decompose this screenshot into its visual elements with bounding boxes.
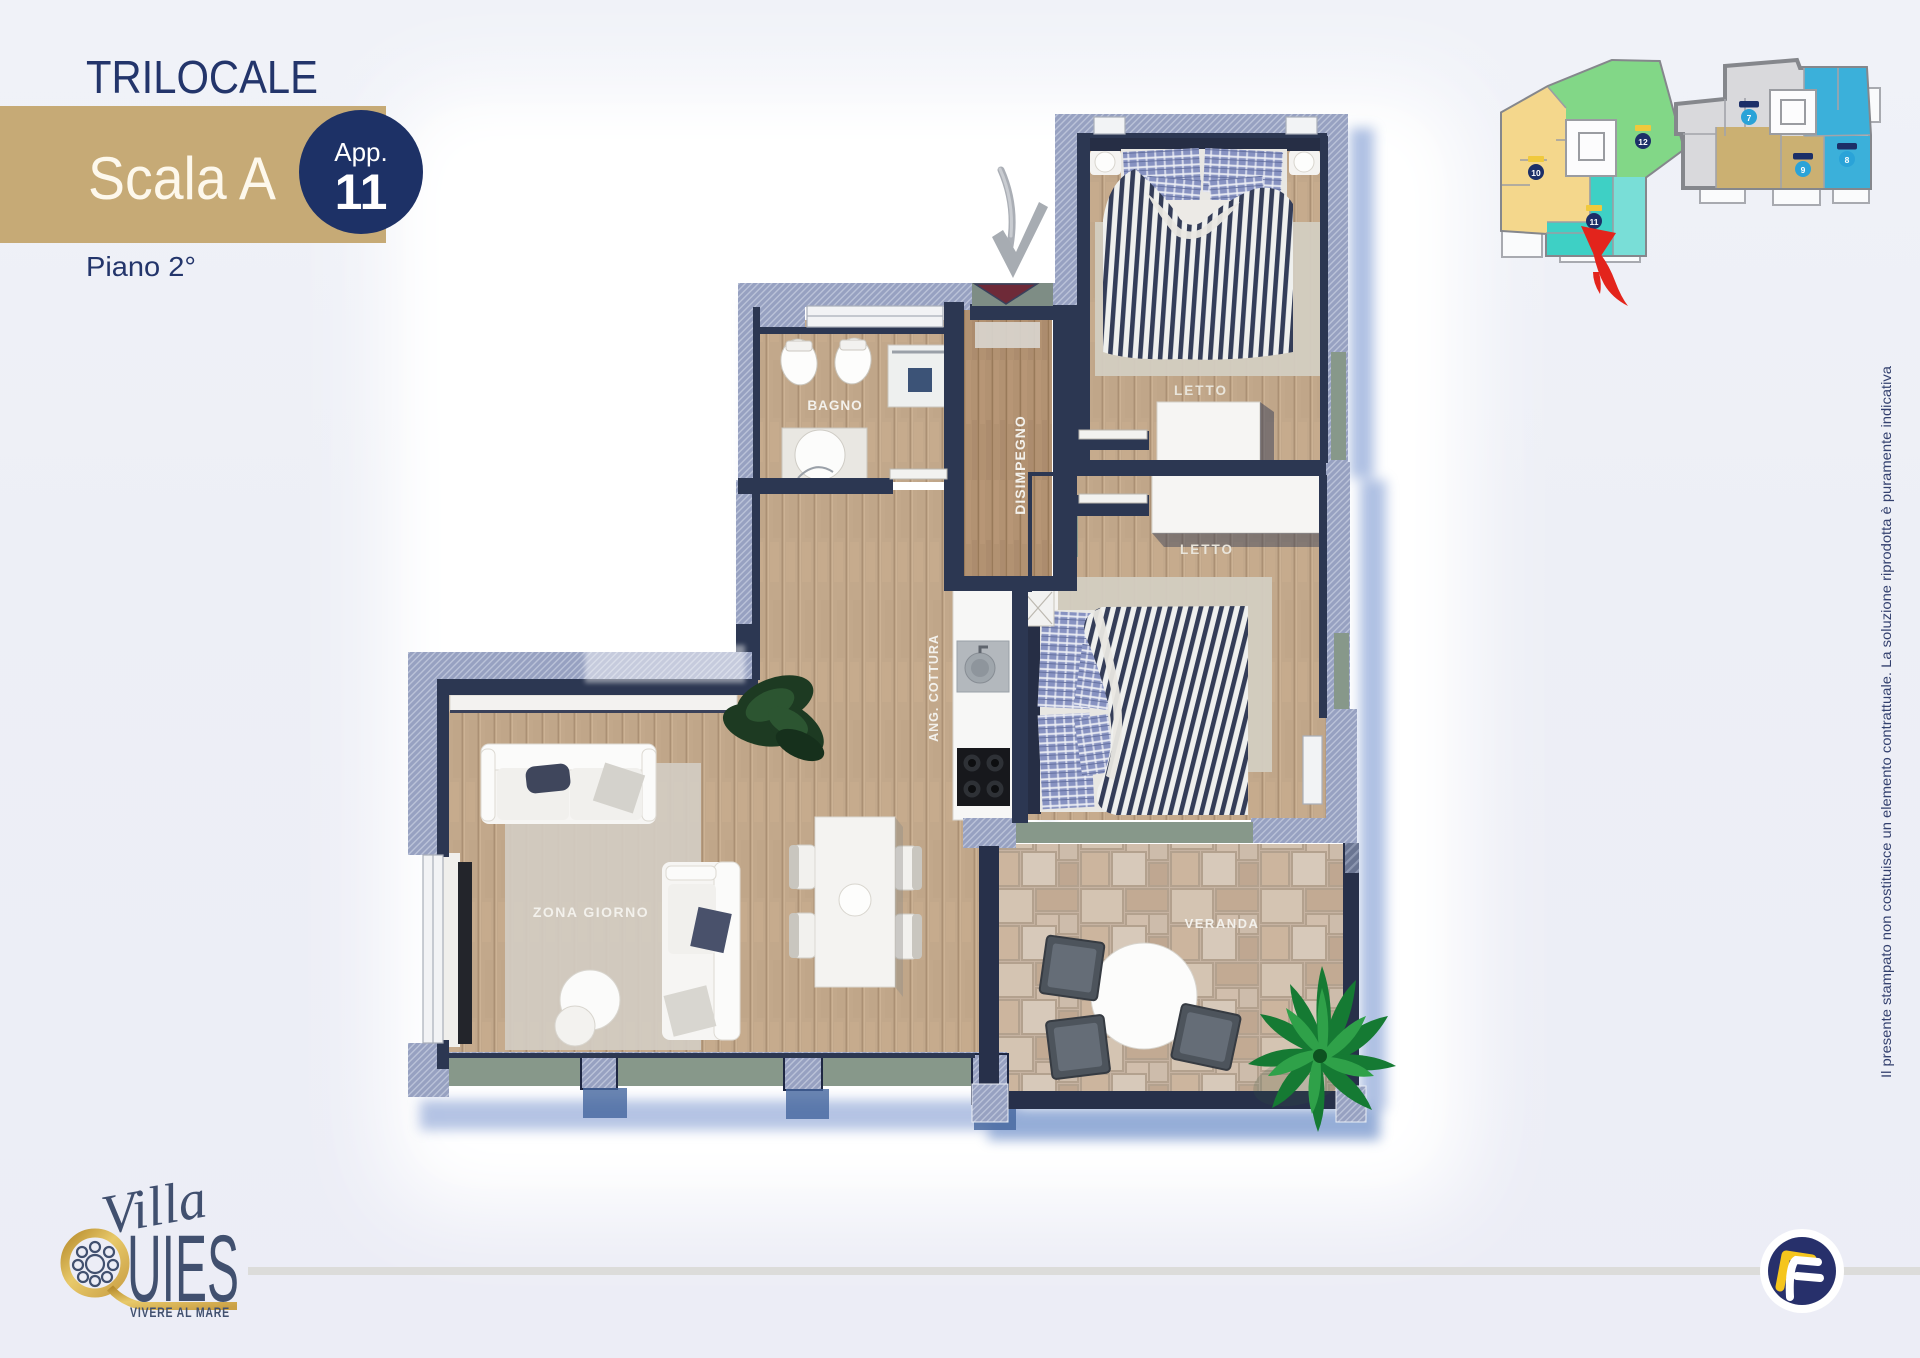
svg-text:LETTO: LETTO	[1174, 383, 1228, 398]
svg-text:Il presente stampato non costi: Il presente stampato non costituisce un …	[1878, 366, 1894, 1078]
svg-text:Scala A: Scala A	[88, 145, 276, 212]
svg-text:10: 10	[1531, 168, 1541, 178]
svg-text:Piano 2°: Piano 2°	[86, 251, 196, 282]
svg-text:DISIMPEGNO: DISIMPEGNO	[1012, 415, 1028, 514]
svg-text:12: 12	[1638, 137, 1648, 147]
svg-text:VIVERE AL MARE: VIVERE AL MARE	[130, 1305, 230, 1320]
svg-text:LETTO: LETTO	[1180, 542, 1234, 557]
svg-text:7: 7	[1747, 113, 1752, 123]
svg-text:9: 9	[1801, 165, 1806, 175]
svg-text:TRILOCALE: TRILOCALE	[86, 51, 318, 103]
svg-text:11: 11	[335, 164, 388, 220]
svg-text:11: 11	[1590, 217, 1599, 227]
svg-text:App.: App.	[334, 137, 388, 167]
svg-text:8: 8	[1845, 155, 1850, 165]
svg-text:BAGNO: BAGNO	[807, 398, 862, 413]
svg-text:ZONA GIORNO: ZONA GIORNO	[533, 904, 649, 920]
svg-text:ANG. COTTURA: ANG. COTTURA	[927, 634, 941, 742]
svg-text:VERANDA: VERANDA	[1185, 916, 1260, 931]
